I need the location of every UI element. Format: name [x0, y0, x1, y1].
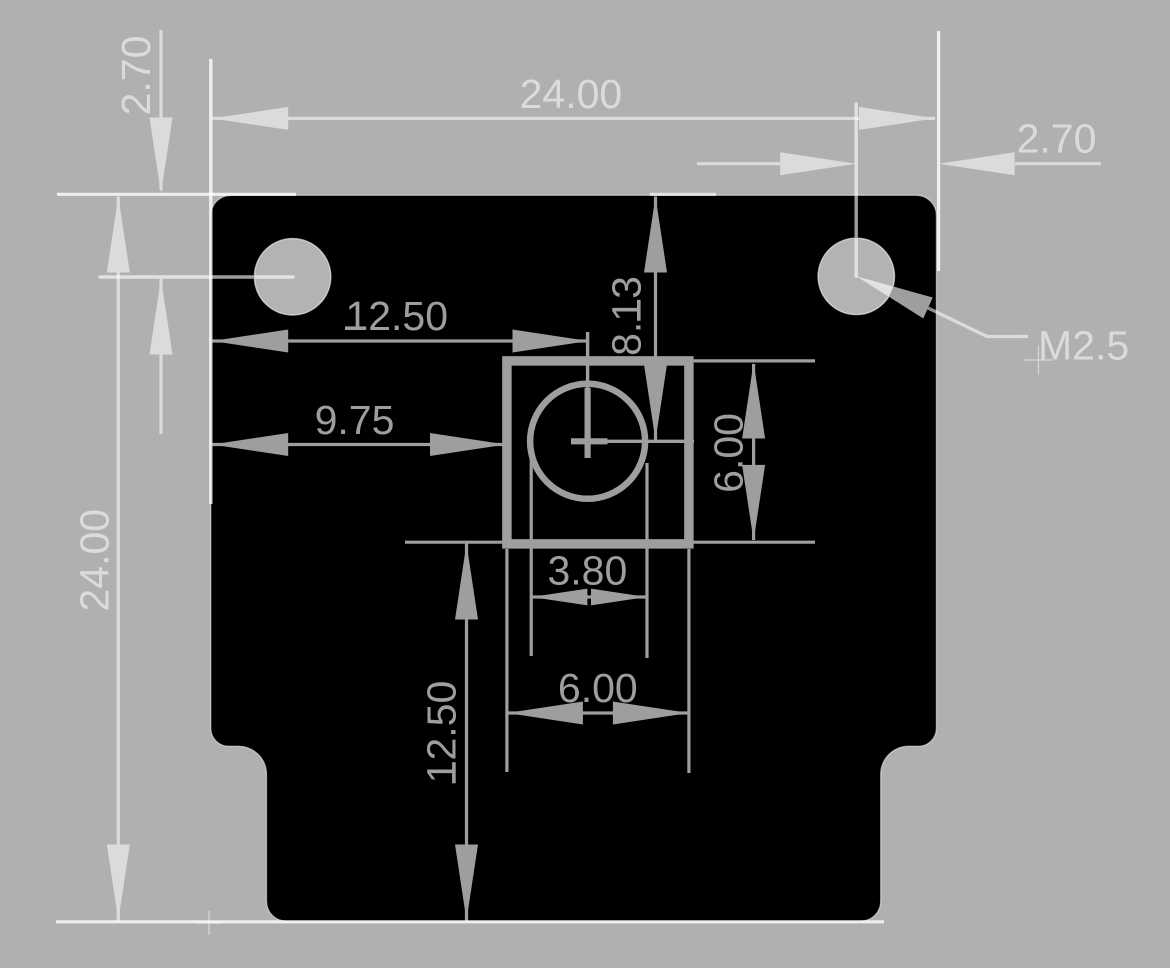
svg-text:12.50: 12.50 — [419, 681, 465, 784]
svg-text:12.50: 12.50 — [345, 293, 448, 339]
svg-text:6.00: 6.00 — [558, 665, 638, 711]
svg-text:8.13: 8.13 — [604, 276, 650, 356]
svg-text:9.75: 9.75 — [315, 397, 395, 443]
svg-text:24.00: 24.00 — [71, 509, 117, 612]
svg-text:M2.5: M2.5 — [1038, 322, 1129, 368]
svg-text:3.80: 3.80 — [547, 548, 627, 594]
svg-text:24.00: 24.00 — [520, 71, 623, 117]
svg-text:2.70: 2.70 — [1017, 116, 1097, 162]
svg-text:6.00: 6.00 — [706, 413, 752, 493]
svg-text:2.70: 2.70 — [113, 36, 159, 116]
